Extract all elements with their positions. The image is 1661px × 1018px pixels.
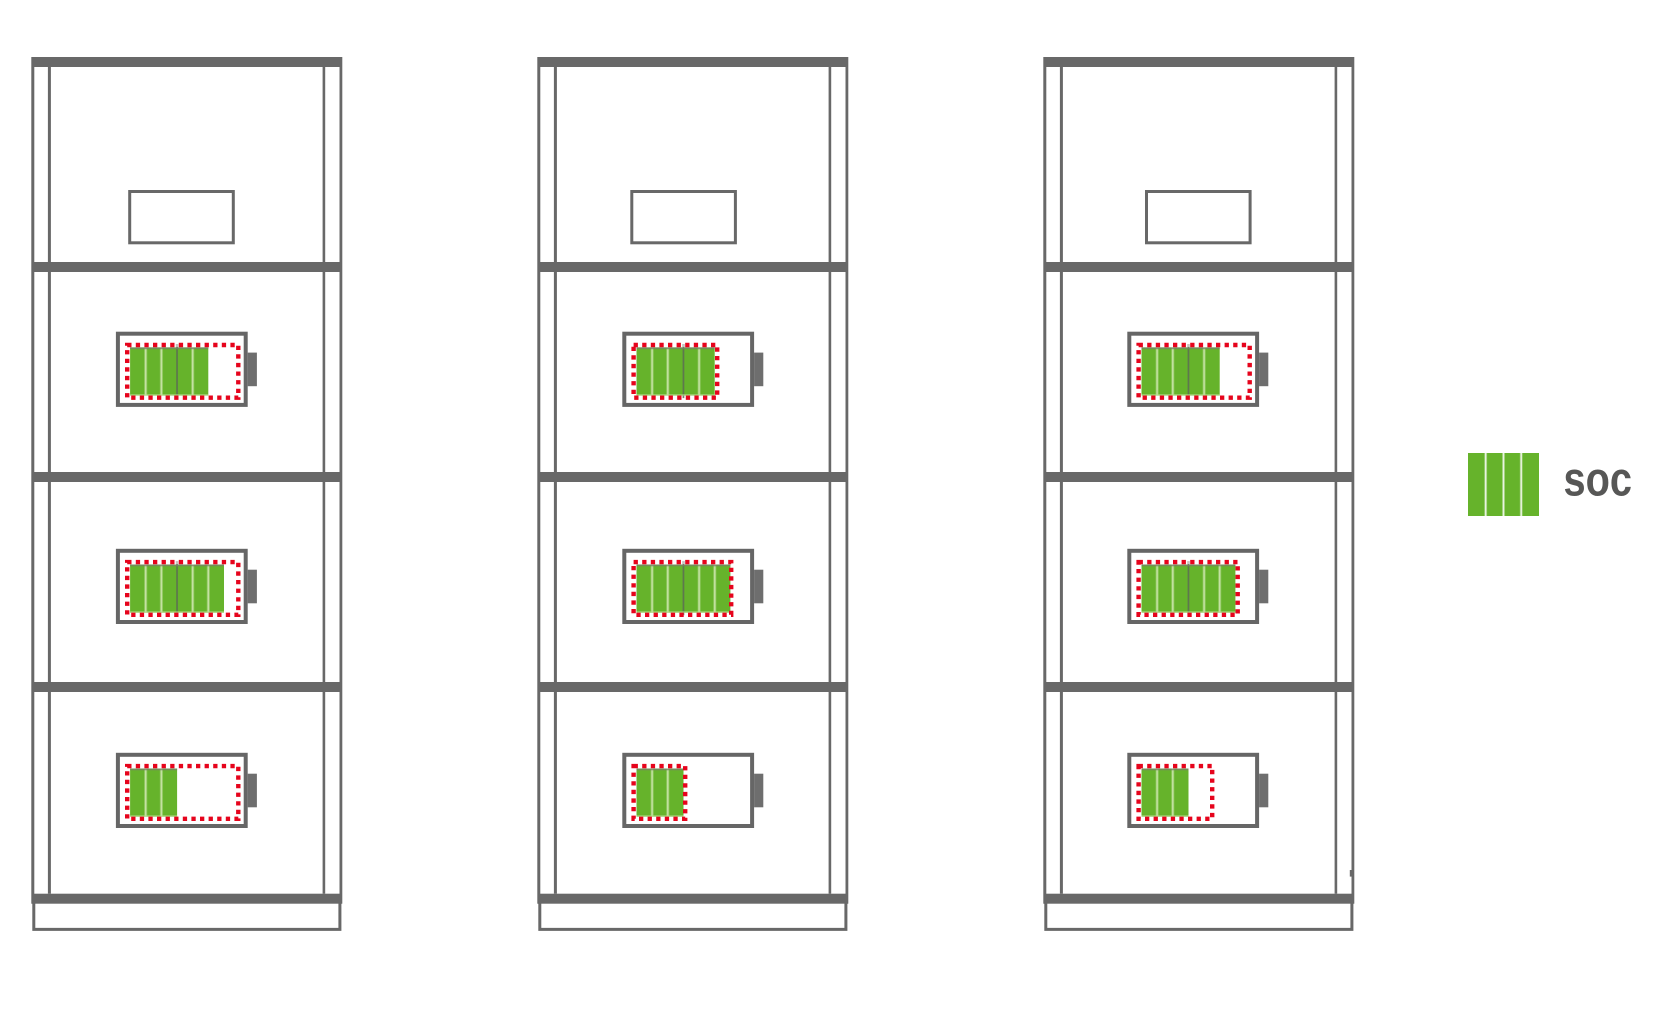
- svg-text:soc: soc: [1564, 454, 1633, 507]
